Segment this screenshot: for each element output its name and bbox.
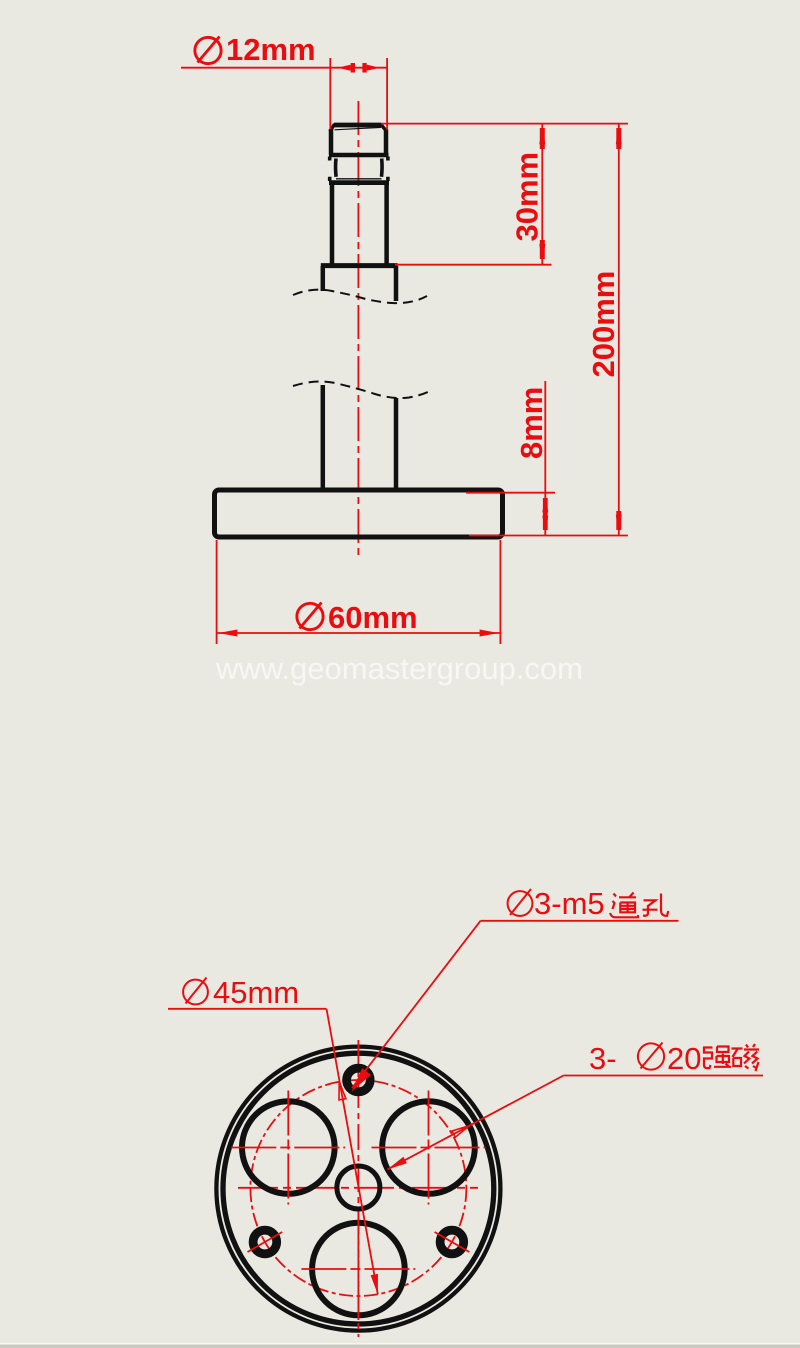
svg-text:20: 20 bbox=[667, 1041, 701, 1076]
svg-text:3-: 3- bbox=[589, 1041, 617, 1076]
svg-text:www.geomastergroup.com: www.geomastergroup.com bbox=[215, 651, 583, 686]
svg-text:8mm: 8mm bbox=[514, 387, 549, 459]
svg-text:45mm: 45mm bbox=[213, 975, 299, 1010]
svg-text:3-m5: 3-m5 bbox=[534, 886, 605, 921]
svg-text:200mm: 200mm bbox=[586, 271, 621, 378]
svg-text:12mm: 12mm bbox=[226, 32, 316, 67]
svg-text:60mm: 60mm bbox=[328, 600, 418, 635]
svg-text:30mm: 30mm bbox=[510, 152, 545, 242]
